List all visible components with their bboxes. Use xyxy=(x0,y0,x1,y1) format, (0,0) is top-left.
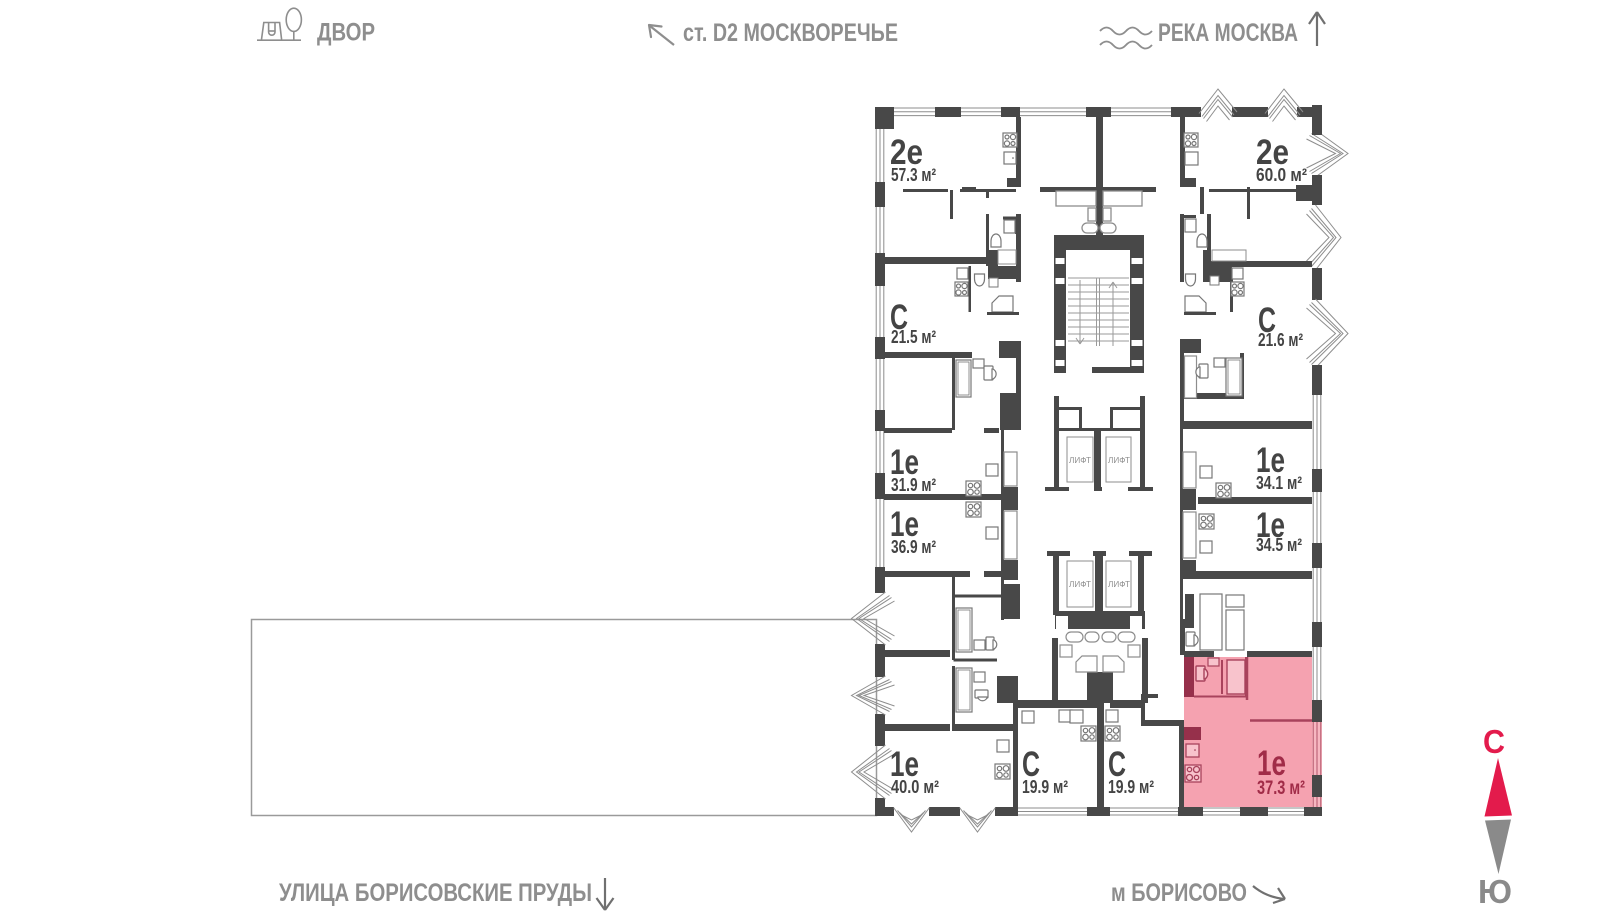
svg-text:РЕКА МОСКВА: РЕКА МОСКВА xyxy=(1158,19,1298,47)
svg-text:37.3 м²: 37.3 м² xyxy=(1257,778,1305,799)
svg-text:ЛИФТ: ЛИФТ xyxy=(1108,456,1130,465)
svg-text:Ю: Ю xyxy=(1478,873,1512,910)
svg-text:21.6 м²: 21.6 м² xyxy=(1258,330,1303,350)
svg-text:60.0 м²: 60.0 м² xyxy=(1256,165,1307,185)
svg-text:УЛИЦА БОРИСОВСКИЕ ПРУДЫ: УЛИЦА БОРИСОВСКИЕ ПРУДЫ xyxy=(279,879,592,907)
svg-text:36.9 м²: 36.9 м² xyxy=(891,537,936,557)
svg-text:ЛИФТ: ЛИФТ xyxy=(1108,580,1130,589)
svg-text:34.5 м²: 34.5 м² xyxy=(1256,535,1302,555)
svg-text:ЛИФТ: ЛИФТ xyxy=(1069,456,1091,465)
svg-text:м БОРИСОВО: м БОРИСОВО xyxy=(1111,879,1247,907)
svg-text:ст. D2 МОСКВОРЕЧЬЕ: ст. D2 МОСКВОРЕЧЬЕ xyxy=(683,19,898,47)
svg-text:21.5 м²: 21.5 м² xyxy=(891,327,936,347)
svg-text:34.1 м²: 34.1 м² xyxy=(1256,473,1302,493)
svg-text:ЛИФТ: ЛИФТ xyxy=(1069,580,1091,589)
svg-text:19.9 м²: 19.9 м² xyxy=(1022,777,1068,797)
svg-text:ДВОР: ДВОР xyxy=(317,19,375,47)
svg-text:31.9 м²: 31.9 м² xyxy=(891,475,936,495)
svg-text:40.0 м²: 40.0 м² xyxy=(891,777,939,797)
svg-text:57.3 м²: 57.3 м² xyxy=(891,165,936,185)
svg-text:С: С xyxy=(1483,723,1505,760)
svg-text:19.9 м²: 19.9 м² xyxy=(1108,777,1154,797)
